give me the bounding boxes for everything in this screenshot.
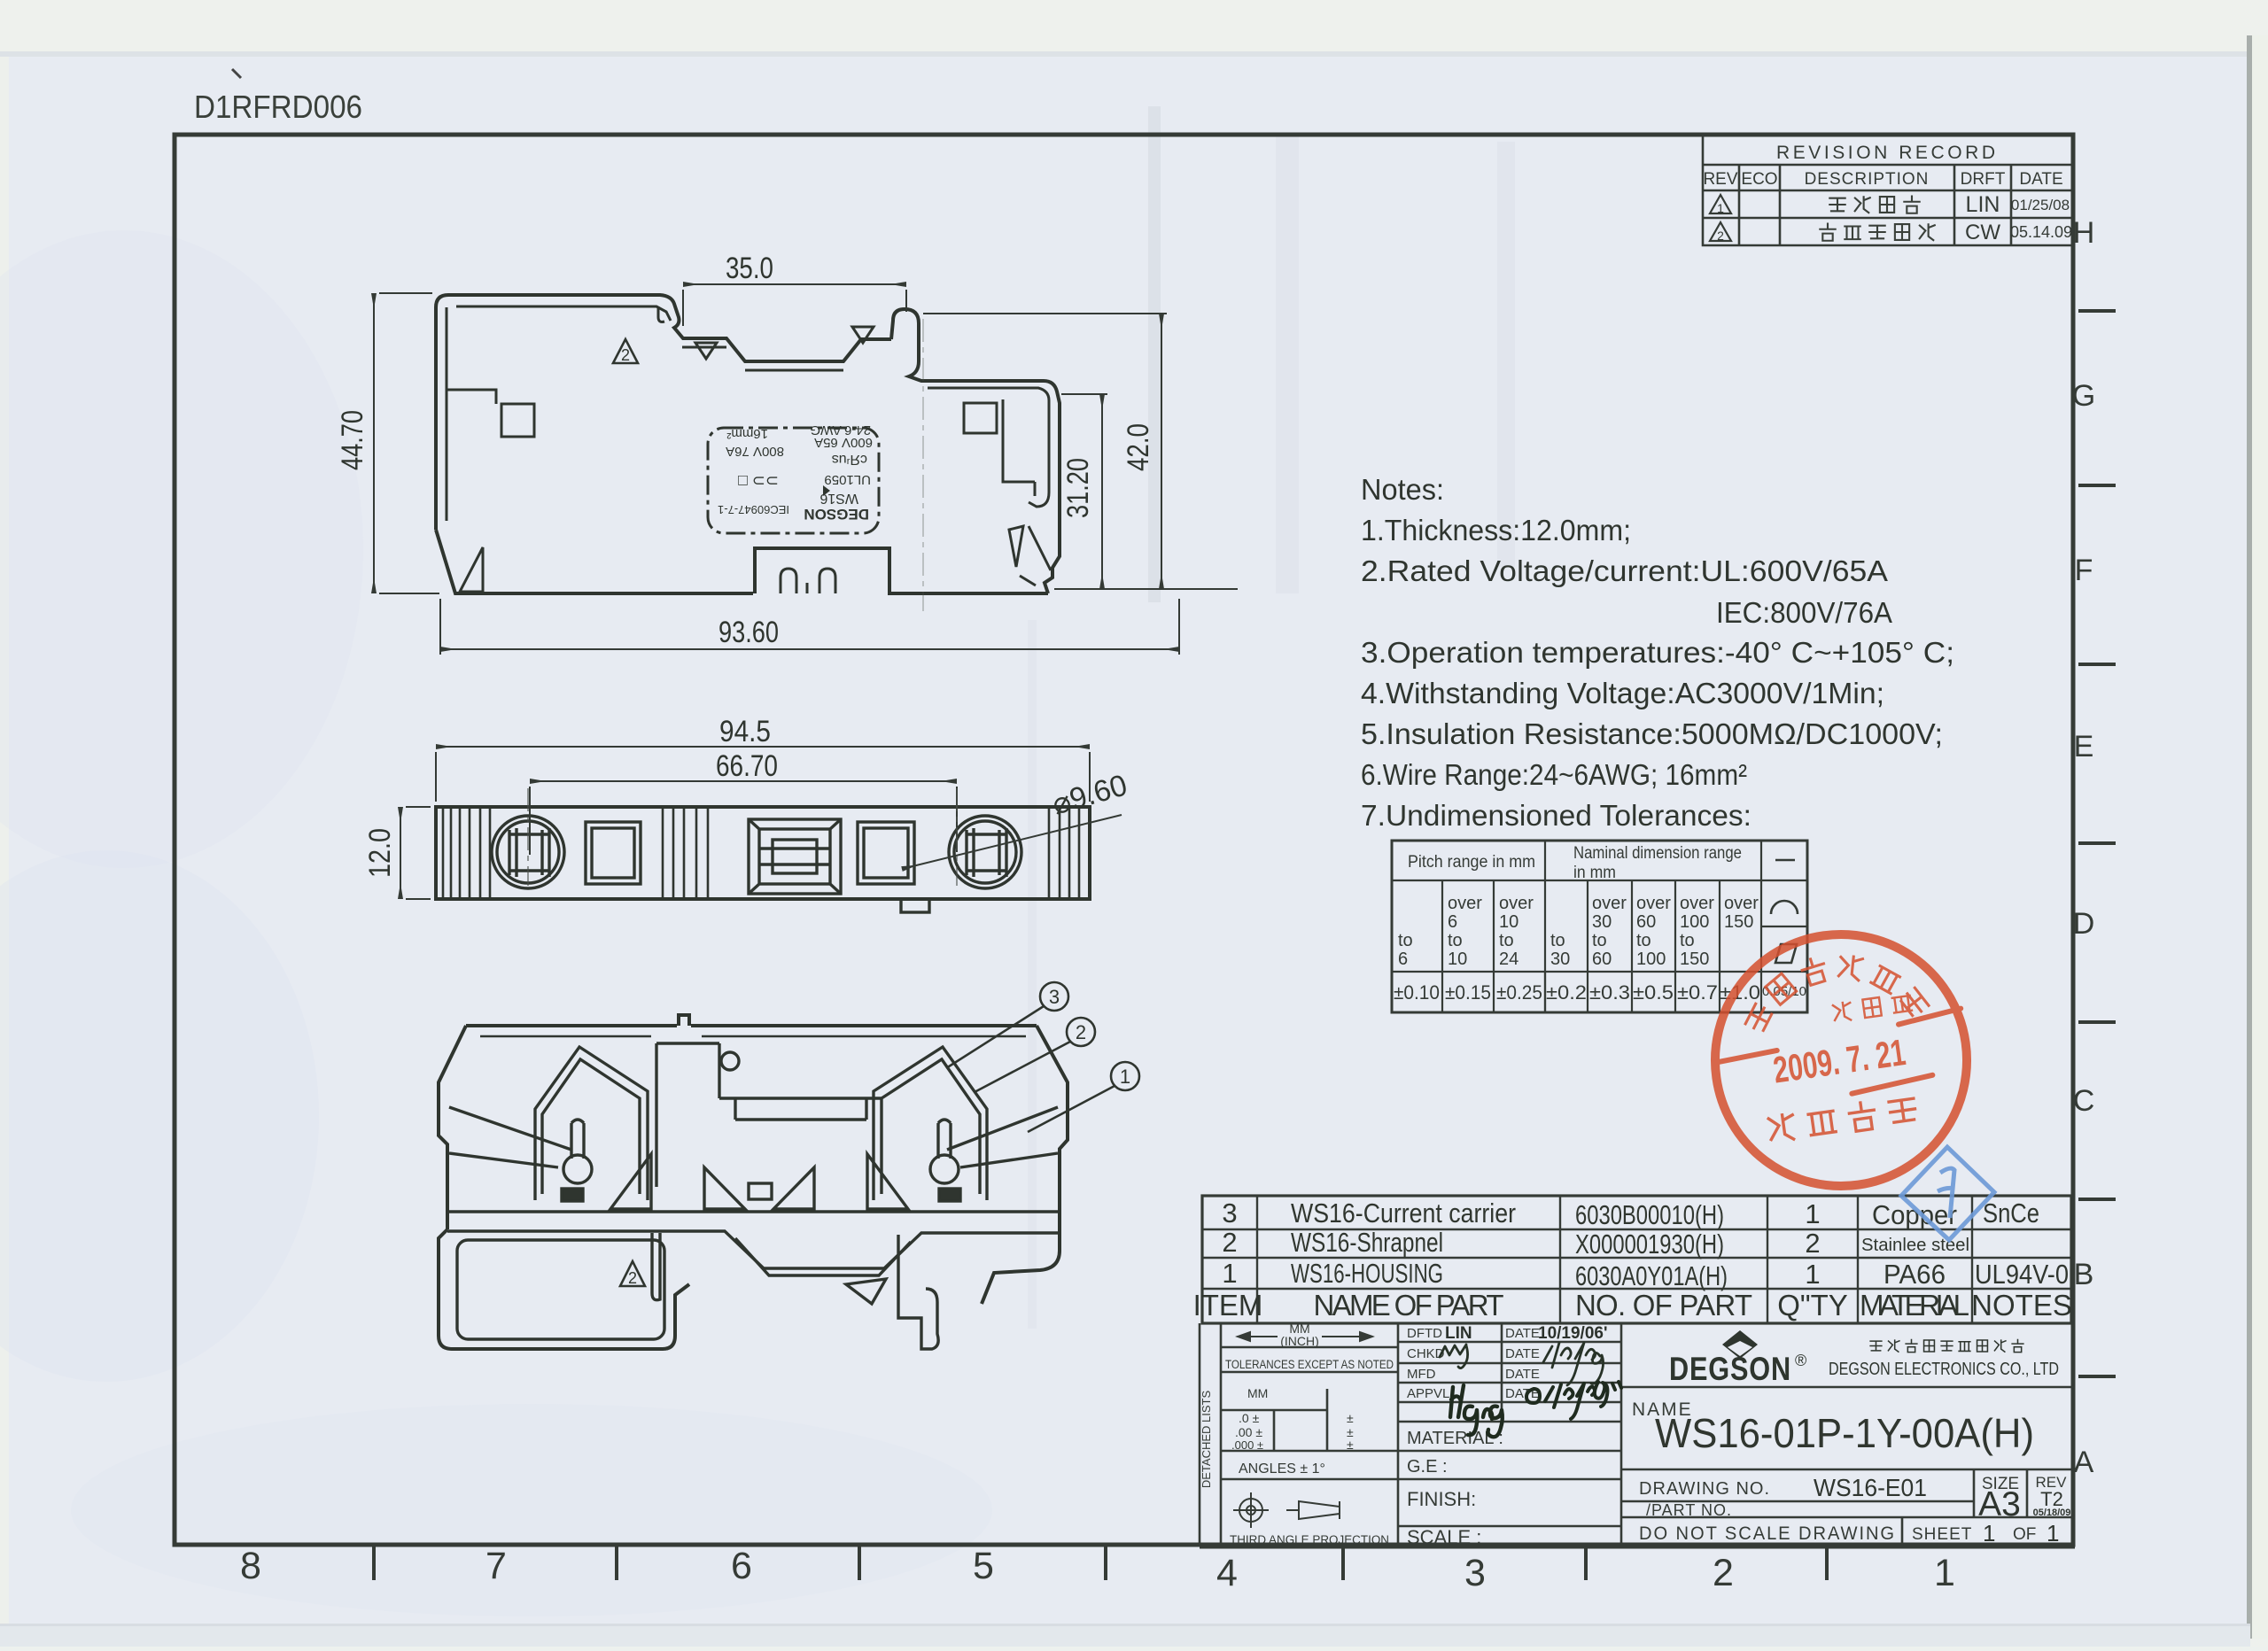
svg-text:1: 1 (1983, 1520, 1995, 1546)
svg-text:over: over (1499, 894, 1534, 913)
svg-text:SCALE :: SCALE : (1407, 1526, 1481, 1548)
svg-text:2: 2 (1805, 1228, 1820, 1259)
svg-text:REVISION RECORD: REVISION RECORD (1776, 143, 1998, 163)
svg-text:3: 3 (1464, 1552, 1486, 1594)
svg-text:2: 2 (1222, 1227, 1237, 1258)
svg-text:±0.25: ±0.25 (1496, 981, 1542, 1004)
svg-text:Pitch range in mm: Pitch range in mm (1408, 853, 1535, 872)
svg-text:REV: REV (1703, 170, 1737, 189)
svg-text:DEGSON ELECTRONICS CO., LTD: DEGSON ELECTRONICS CO., LTD (1829, 1360, 2059, 1379)
svg-text:DATE: DATE (1505, 1346, 1540, 1361)
svg-text:±0.5: ±0.5 (1633, 981, 1674, 1004)
svg-text:6.Wire Range:24~6AWG; 16mm²: 6.Wire Range:24~6AWG; 16mm² (1361, 758, 1747, 791)
svg-text:DATE: DATE (1505, 1367, 1540, 1382)
svg-text:42.0: 42.0 (1122, 423, 1155, 471)
svg-text:2: 2 (628, 1269, 637, 1287)
svg-text:3: 3 (1049, 986, 1060, 1008)
svg-text:ANGLES ± 1°: ANGLES ± 1° (1239, 1461, 1325, 1477)
svg-text:4.Withstanding Voltage:AC3000V: 4.Withstanding Voltage:AC3000V/1Min; (1361, 677, 1884, 709)
svg-text:1: 1 (1805, 1259, 1820, 1290)
svg-text:cЯʴus: cЯʴus (832, 452, 867, 467)
svg-text:THIRD ANGLE PROJECTION: THIRD ANGLE PROJECTION (1230, 1533, 1389, 1546)
svg-text:WS16-Shrapnel: WS16-Shrapnel (1291, 1227, 1443, 1258)
svg-text:±: ± (1347, 1411, 1354, 1425)
svg-text:1: 1 (1805, 1198, 1820, 1229)
svg-text:7.Undimensioned Tolerances:: 7.Undimensioned Tolerances: (1361, 799, 1751, 832)
svg-text:LIN: LIN (1445, 1324, 1472, 1343)
svg-text:60: 60 (1592, 950, 1612, 969)
svg-text:over: over (1724, 894, 1759, 913)
svg-text:±0.3: ±0.3 (1589, 981, 1630, 1004)
svg-text:over: over (1592, 894, 1627, 913)
svg-text:A3: A3 (1978, 1485, 2021, 1523)
svg-text:over: over (1448, 894, 1482, 913)
svg-text:±0.15: ±0.15 (1445, 981, 1491, 1004)
svg-text:NAME OF PART: NAME OF PART (1314, 1289, 1504, 1322)
svg-text:.0 ±: .0 ± (1239, 1411, 1260, 1425)
svg-text:3.Operation temperatures:-40°: 3.Operation temperatures:-40° C~+105° C; (1361, 636, 1954, 669)
svg-text:24-6 AWG: 24-6 AWG (810, 422, 871, 438)
svg-text:A: A (2074, 1446, 2094, 1479)
svg-text:150: 150 (1680, 950, 1709, 969)
svg-text:UL94V-0: UL94V-0 (1975, 1259, 2069, 1290)
svg-text:Notes:: Notes: (1361, 473, 1444, 506)
svg-text:F: F (2075, 554, 2093, 587)
svg-text:WS16-01P-1Y-00A(H): WS16-01P-1Y-00A(H) (1655, 1410, 2034, 1456)
svg-text:D1RFRD006: D1RFRD006 (194, 89, 362, 125)
svg-text:30: 30 (1550, 950, 1570, 969)
svg-text:DRFT: DRFT (1961, 170, 2006, 189)
svg-text:12.0: 12.0 (363, 828, 397, 878)
svg-text:100: 100 (1636, 950, 1666, 969)
svg-text:DEGSON: DEGSON (804, 506, 869, 523)
svg-text:PA66: PA66 (1884, 1259, 1946, 1290)
svg-text:in mm: in mm (1573, 864, 1616, 882)
svg-text:LIN: LIN (1966, 192, 2000, 217)
svg-text:(INCH): (INCH) (1280, 1334, 1319, 1348)
svg-text:±0.7: ±0.7 (1677, 981, 1718, 1004)
svg-text:1: 1 (1717, 201, 1724, 215)
svg-text:60: 60 (1636, 912, 1656, 932)
svg-text:2: 2 (1717, 229, 1724, 243)
svg-text:to: to (1448, 931, 1463, 950)
svg-text:±0.10: ±0.10 (1394, 981, 1440, 1004)
svg-text:FINISH:: FINISH: (1407, 1488, 1476, 1510)
svg-text:to: to (1636, 931, 1651, 950)
svg-text:to: to (1398, 931, 1413, 950)
svg-text:10: 10 (1448, 950, 1467, 969)
svg-text:100: 100 (1680, 912, 1709, 932)
svg-text:to: to (1499, 931, 1514, 950)
svg-text:6030A0Y01A(H): 6030A0Y01A(H) (1575, 1260, 1728, 1291)
svg-text:IEC:800V/76A: IEC:800V/76A (1716, 596, 1892, 629)
svg-text:1: 1 (1120, 1066, 1130, 1088)
svg-text:CW: CW (1965, 221, 2000, 244)
svg-text:to: to (1550, 931, 1565, 950)
svg-text:DESCRIPTION: DESCRIPTION (1805, 170, 1930, 189)
svg-text:to: to (1592, 931, 1607, 950)
svg-text:DEGSON: DEGSON (1669, 1351, 1791, 1387)
svg-text:DRAWING NO.: DRAWING NO. (1639, 1479, 1770, 1499)
svg-text:1.Thickness:12.0mm;: 1.Thickness:12.0mm; (1361, 514, 1631, 546)
svg-text:Naminal dimension range: Naminal dimension range (1573, 844, 1742, 863)
svg-text:SHEET: SHEET (1912, 1525, 1972, 1544)
svg-text:2.Rated Voltage/current:UL:600: 2.Rated Voltage/current:UL:600V/65A (1361, 554, 1888, 587)
svg-text:ITEM: ITEM (1193, 1289, 1263, 1322)
svg-text:35.0: 35.0 (726, 252, 773, 285)
svg-text:30: 30 (1592, 912, 1612, 932)
svg-text:7: 7 (485, 1545, 507, 1587)
svg-text:DFTD: DFTD (1407, 1326, 1442, 1341)
svg-text:TOLERANCES EXCEPT AS NOTED: TOLERANCES EXCEPT AS NOTED (1225, 1358, 1394, 1371)
svg-text:WS16-Current carrier: WS16-Current carrier (1291, 1198, 1516, 1229)
svg-text:CHKD: CHKD (1407, 1346, 1445, 1361)
svg-text:31.20: 31.20 (1061, 458, 1095, 518)
svg-text:10/19/06': 10/19/06' (1538, 1324, 1607, 1343)
svg-text:DATE: DATE (1505, 1326, 1540, 1341)
svg-text:NO. OF PART: NO. OF PART (1575, 1289, 1752, 1322)
svg-text:SnCe: SnCe (1983, 1198, 2039, 1229)
svg-text:/PART NO.: /PART NO. (1646, 1501, 1732, 1519)
svg-text:IEC60947-7-1: IEC60947-7-1 (718, 503, 789, 516)
svg-text:.00 ±: .00 ± (1235, 1425, 1262, 1439)
svg-text:WS16-E01: WS16-E01 (1814, 1474, 1927, 1501)
svg-text:over: over (1636, 894, 1671, 913)
svg-text:5: 5 (973, 1545, 994, 1587)
svg-text:93.60: 93.60 (718, 616, 779, 649)
svg-text:MFD: MFD (1407, 1367, 1436, 1382)
svg-text:8: 8 (240, 1545, 261, 1587)
svg-text:Q"TY: Q"TY (1777, 1289, 1848, 1322)
svg-text:WS16-HOUSING: WS16-HOUSING (1291, 1258, 1443, 1289)
svg-text:05.14.09: 05.14.09 (2010, 223, 2072, 241)
svg-text:NOTES: NOTES (1971, 1289, 2072, 1322)
svg-text:6: 6 (731, 1545, 752, 1587)
svg-text:E: E (2074, 730, 2094, 763)
svg-text:.000 ±: .000 ± (1231, 1438, 1263, 1452)
svg-text:Copper: Copper (1872, 1199, 1957, 1230)
svg-text:over: over (1680, 894, 1714, 913)
svg-text:1: 1 (2047, 1520, 2059, 1546)
svg-text:±0.2: ±0.2 (1546, 981, 1587, 1004)
svg-text:⊃⊃ □: ⊃⊃ □ (738, 472, 779, 490)
svg-text:6: 6 (1448, 912, 1457, 932)
svg-text:4: 4 (1216, 1552, 1238, 1594)
svg-text:DETACHED LISTS: DETACHED LISTS (1200, 1391, 1213, 1489)
svg-text:2: 2 (1076, 1021, 1086, 1043)
svg-text:G.E :: G.E : (1407, 1457, 1448, 1477)
svg-text:to: to (1680, 931, 1695, 950)
svg-text:44.70: 44.70 (336, 410, 369, 470)
svg-text:150: 150 (1724, 912, 1753, 932)
svg-text:5.Insulation Resistance:5000MΩ: 5.Insulation Resistance:5000MΩ/DC1000V; (1361, 717, 1943, 750)
svg-text:6030B00010(H): 6030B00010(H) (1575, 1199, 1724, 1230)
svg-text:1: 1 (1222, 1258, 1237, 1289)
svg-text:66.70: 66.70 (716, 749, 778, 783)
svg-text:3: 3 (1222, 1198, 1237, 1229)
svg-text:6: 6 (1398, 950, 1408, 969)
svg-text:24: 24 (1499, 950, 1518, 969)
svg-text:MATERIAL: MATERIAL (1860, 1289, 1969, 1322)
svg-text:D: D (2073, 907, 2095, 941)
svg-text:05/18/09: 05/18/09 (2033, 1508, 2071, 1518)
svg-text:MM: MM (1247, 1386, 1268, 1400)
svg-text:±: ± (1347, 1438, 1354, 1452)
svg-text:C: C (2073, 1084, 2095, 1118)
svg-text:OF: OF (2013, 1525, 2036, 1544)
svg-text:APPVL: APPVL (1407, 1386, 1449, 1401)
svg-text:UL1059: UL1059 (824, 472, 871, 487)
svg-text:B: B (2074, 1258, 2094, 1291)
svg-text:H: H (2073, 216, 2095, 250)
svg-text:2: 2 (1713, 1552, 1734, 1594)
svg-text:G: G (2072, 379, 2095, 413)
svg-text:94.5: 94.5 (719, 715, 771, 748)
svg-text:16mm²: 16mm² (726, 426, 768, 441)
svg-text:ECO: ECO (1741, 170, 1777, 189)
svg-text:1: 1 (1934, 1552, 1955, 1594)
svg-text:X000001930(H): X000001930(H) (1575, 1229, 1724, 1260)
svg-text:DO NOT SCALE DRAWING: DO NOT SCALE DRAWING (1639, 1523, 1896, 1544)
svg-text:DATE: DATE (2019, 170, 2062, 189)
svg-text:800V 76A: 800V 76A (726, 444, 784, 459)
svg-text:2: 2 (621, 346, 630, 364)
svg-text:01/25/08: 01/25/08 (2011, 197, 2070, 213)
svg-text:10: 10 (1499, 912, 1518, 932)
svg-text:®: ® (1795, 1352, 1806, 1369)
